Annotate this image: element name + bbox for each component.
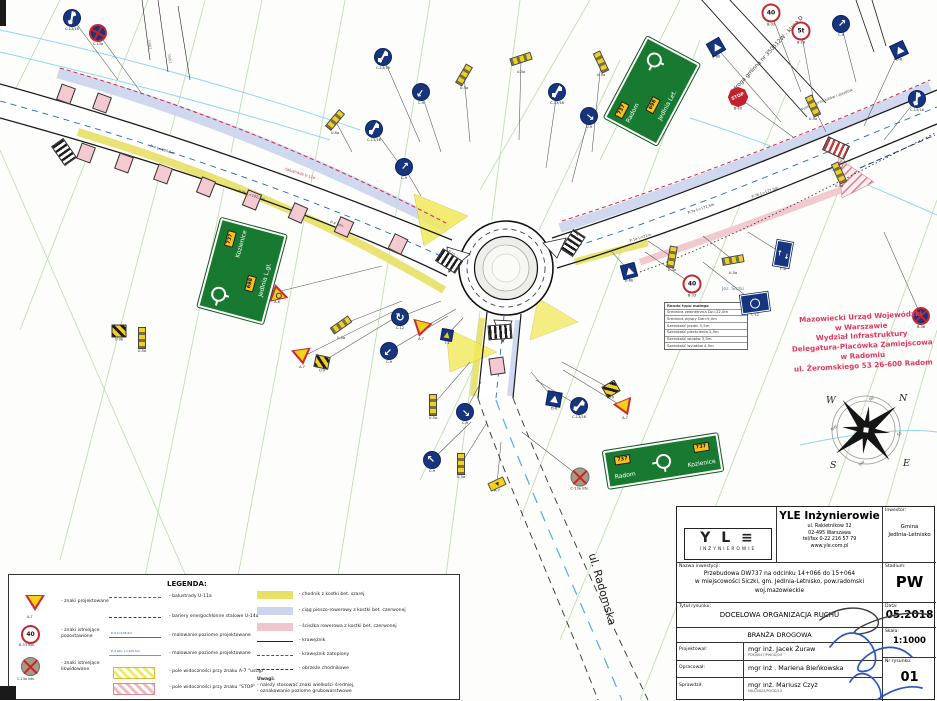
- scale-value: 1:1000: [883, 636, 936, 646]
- checked-label-cell: Sprawdził:: [677, 678, 744, 701]
- route-shield: 698: [645, 96, 661, 115]
- project-line: w miejscowości Siczki, gm. Jedlnia-Letni…: [677, 578, 882, 586]
- legend-icon-removed: [21, 657, 40, 676]
- compass-w: W: [826, 395, 837, 406]
- drafted-label: Opracował:: [677, 664, 743, 670]
- legend-icon-b33: 40: [21, 625, 40, 644]
- param-table-row: Szerokość pierścienia 1,5m: [665, 329, 747, 336]
- legend-label: - krawężnik zatopiony: [299, 652, 349, 658]
- svg-text:NE: NE: [868, 394, 876, 402]
- param-table-row: Szerokość wylotów 4,5m: [665, 342, 747, 349]
- legend-sample-edge: [257, 669, 293, 670]
- legend-label: - krawężnik: [299, 638, 325, 644]
- logo-subtitle: INŻYNIEROWIE: [685, 547, 771, 552]
- route-shield: 737: [692, 442, 710, 453]
- legend-sub: A-7: [27, 615, 33, 619]
- legend-sample-kerb: [257, 641, 293, 642]
- legend-sample-text: P-4 istn. L=105,5m: [111, 649, 140, 653]
- company-address: ul. Rakietników 32 02-495 Warszawa tel/f…: [777, 524, 882, 551]
- drawing-title: DOCELOWA ORGANIZACJA RUCHU: [677, 611, 882, 619]
- legend-sample-kerb-sunk: [257, 655, 293, 656]
- branch-cell: BRANŻA DROGOWA: [677, 628, 883, 643]
- route-shield: 737: [224, 230, 237, 248]
- destination-label: Jedlnia L.gł.: [258, 263, 273, 298]
- legend-swatch-cycle: [257, 623, 293, 631]
- legend-label: - ścieżka rowerowa z kostki bet. czerwon…: [299, 624, 397, 630]
- destination-label: Kozienice: [687, 459, 716, 469]
- drawing-sheet: NW NE SE SW W N S E C-13/16C-13aU-5aC-13…: [0, 0, 937, 700]
- roundabout-glyph: [210, 285, 228, 303]
- legend-sub: B-33 istn.: [19, 643, 35, 647]
- designed-label-cell: Projektował:: [677, 643, 744, 661]
- checked-name: mgr inż. Mariusz Czyż: [744, 678, 882, 689]
- drawing-number-label: Nr rysunku:: [883, 658, 936, 664]
- param-table-row: Szerokość jezdni 5,5m: [665, 322, 747, 329]
- legend-label: - malowanie poziome projektowane: [169, 651, 251, 657]
- legend-label: - znaki projektowane: [61, 599, 109, 605]
- legend-swatch-pedcycle: [257, 607, 293, 615]
- investor-name: Gmina: [883, 523, 936, 531]
- compass-e: E: [902, 458, 910, 469]
- project-line: woj.mazowieckie: [677, 587, 882, 595]
- legend-sub: C-13a istn.: [17, 677, 35, 681]
- compass-s: S: [830, 460, 837, 471]
- date-value: 05.2018: [883, 609, 936, 621]
- legend-label: - ciąg pieszo-rowerowy z kostki bet. cze…: [299, 608, 406, 614]
- legend-icon-a7: [25, 595, 45, 611]
- checked-value-cell: mgr inż. Mariusz Czyż MAZ/0023/POOD/14: [744, 678, 883, 701]
- logo-glyph: Y L ≡: [685, 529, 771, 547]
- legend-label: - pole widoczności przy znaku "STOP": [169, 685, 255, 691]
- param-table-row: Średnica wyspy Dw=9,0m: [665, 315, 747, 322]
- compass-n: N: [898, 393, 908, 404]
- scan-artifact: [0, 686, 16, 700]
- stadium-value: PW: [883, 573, 936, 591]
- legend-label: - pole widoczności przy znaku A-7 "ustąp…: [169, 669, 265, 675]
- route-shield: 737: [614, 454, 632, 465]
- company-logo: Y L ≡ INŻYNIEROWIE: [684, 528, 772, 560]
- roundabout-glyph: [644, 50, 664, 70]
- legend-swatch-sidewalk: [257, 591, 293, 599]
- investor-cell: Inwestor: Gmina Jedlnia-Letnisko: [883, 507, 936, 563]
- legend: LEGENDA: A-7 - znaki projektowane 40 B-3…: [8, 574, 460, 700]
- legend-sample-sight-stop: [113, 683, 155, 695]
- roundabout-glyph: [655, 453, 672, 470]
- designed-name: mgr inż. Jacek Żuraw: [744, 643, 882, 653]
- designed-cert: PDK/6047/PWOD/04: [744, 653, 882, 657]
- company-addr-line: ul. Rakietników 32: [777, 524, 882, 531]
- project-cell: Nazwa inwestycji: Przebudowa DW737 na od…: [677, 563, 883, 603]
- logo-cell: Y L ≡ INŻYNIEROWIE: [677, 507, 777, 563]
- legend-label: - chodnik z kostki bet. szarej: [299, 592, 364, 598]
- designed-label: Projektował:: [677, 646, 743, 652]
- legend-label: - malowanie poziome projektowane: [169, 633, 251, 639]
- scan-artifact: [0, 0, 6, 26]
- legend-label: - obrzeże chodnikowe: [299, 666, 349, 672]
- svg-text:SW: SW: [857, 459, 865, 467]
- stadium-cell: Stadium: PW: [883, 563, 936, 603]
- legend-label: - znaki istniejące pozostawione: [61, 628, 100, 640]
- drawing-title-cell: Tytuł rysunku: DOCELOWA ORGANIZACJA RUCH…: [677, 603, 883, 628]
- drafted-name: mgr inż . Marlena Bieńkowska: [744, 661, 882, 672]
- destination-label: Radom: [615, 471, 637, 480]
- compass-rose: NW NE SE SW W N S E: [813, 377, 920, 484]
- checked-cert: MAZ/0023/POOD/14: [744, 689, 882, 693]
- project-label: Nazwa inwestycji:: [677, 563, 882, 569]
- scale-cell: Skala: 1:1000: [883, 628, 936, 658]
- scale-label: Skala:: [883, 628, 936, 634]
- drawing-title-label: Tytuł rysunku:: [677, 603, 882, 609]
- designed-value-cell: mgr inż. Jacek Żuraw PDK/6047/PWOD/04: [744, 643, 883, 661]
- legend-sample-balustrade: [109, 597, 161, 598]
- branch-value: BRANŻA DROGOWA: [677, 631, 882, 639]
- param-table-row: Szerokość wlotów 3,5m: [665, 336, 747, 343]
- checked-label: Sprawdził:: [677, 682, 743, 688]
- legend-sample-sight-a7: [113, 667, 155, 679]
- company-name: YLE Inżynierowie: [777, 510, 882, 522]
- stadium-label: Stadium:: [883, 563, 936, 569]
- project-line: Przebudowa DW737 na odcinku 14+066 do 15…: [677, 570, 882, 578]
- legend-note: - oznakowanie poziome grubowarstwowe: [257, 689, 352, 695]
- drafted-value-cell: mgr inż . Marlena Bieńkowska: [744, 661, 883, 678]
- approval-stamp: Mazowiecki Urząd Wojewódzki w Warszawie …: [785, 308, 937, 374]
- company-cell: YLE Inżynierowie ul. Rakietników 32 02-4…: [777, 507, 883, 563]
- investor-name: Jedlnia-Letnisko: [883, 531, 936, 539]
- legend-title: LEGENDA:: [167, 580, 207, 588]
- title-block: Y L ≡ INŻYNIEROWIE YLE Inżynierowie ul. …: [676, 506, 935, 700]
- drafted-label-cell: Opracował:: [677, 661, 744, 678]
- roundabout-parameter-table: Rondo typu małegoŚrednica zewnętrzna Dz=…: [664, 302, 748, 350]
- legend-label: - bariery energochłonne stalowe U-14a: [169, 614, 259, 620]
- legend-sample-text: P-4 L=105,5m: [111, 631, 132, 635]
- legend-label: - balustrady U-11a: [169, 594, 212, 600]
- legend-sample-marking: [109, 637, 161, 638]
- route-shield: 698: [244, 274, 257, 292]
- drawing-number: 01: [883, 670, 936, 685]
- number-cell: Nr rysunku: 01: [883, 658, 936, 701]
- destination-label: Kozienice: [235, 230, 248, 259]
- param-table-row: Średnica zewnętrzna Dz=22,0m: [665, 309, 747, 316]
- legend-sample-marking-exist: [109, 655, 161, 656]
- existing-road-south: [478, 398, 648, 700]
- legend-sample-barrier: [109, 617, 161, 618]
- legend-label: - znaki istniejące likwidowane: [61, 661, 100, 673]
- company-addr-line: www.yle.com.pl: [777, 544, 882, 551]
- date-cell: Data: 05.2018: [883, 603, 936, 628]
- investor-label: Inwestor:: [883, 507, 936, 513]
